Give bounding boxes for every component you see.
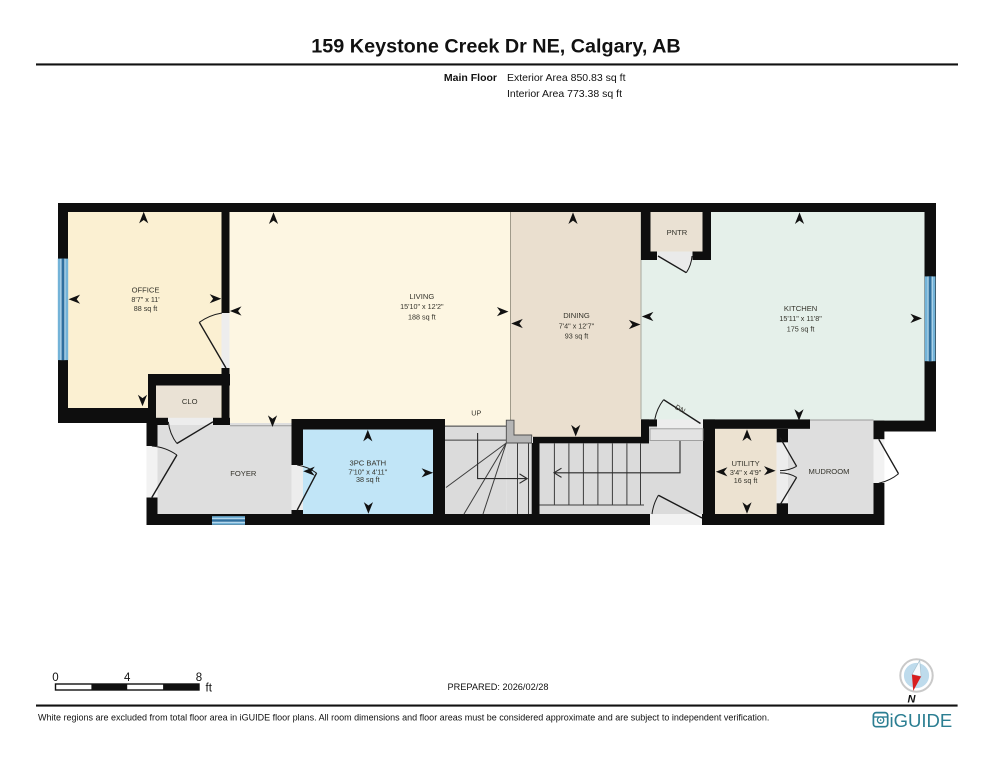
svg-text:159 Keystone Creek Dr NE, Calg: 159 Keystone Creek Dr NE, Calgary, AB [311, 36, 680, 58]
svg-text:0: 0 [52, 672, 58, 684]
svg-text:93 sq ft: 93 sq ft [565, 332, 589, 341]
svg-text:CLO: CLO [182, 397, 198, 406]
svg-text:iGUIDE: iGUIDE [890, 710, 953, 731]
svg-text:PNTR: PNTR [667, 228, 688, 237]
svg-text:KITCHEN: KITCHEN [784, 304, 817, 313]
svg-text:MUDROOM: MUDROOM [809, 467, 850, 476]
svg-text:15'11" x 11'8": 15'11" x 11'8" [779, 314, 822, 323]
svg-text:UP: UP [471, 408, 481, 417]
svg-text:15'10" x 12'2": 15'10" x 12'2" [400, 302, 444, 311]
svg-text:DINING: DINING [563, 311, 590, 320]
svg-text:N: N [908, 694, 917, 706]
svg-text:4: 4 [124, 672, 131, 684]
svg-text:175 sq ft: 175 sq ft [787, 324, 815, 333]
svg-text:LIVING: LIVING [409, 292, 434, 301]
svg-text:UTILITY: UTILITY [731, 459, 759, 468]
svg-text:88 sq ft: 88 sq ft [134, 304, 158, 313]
svg-text:Exterior Area 850.83 sq ft: Exterior Area 850.83 sq ft [507, 72, 626, 84]
svg-text:Interior Area 773.38 sq ft: Interior Area 773.38 sq ft [507, 88, 622, 100]
svg-text:8'7" x 11': 8'7" x 11' [131, 295, 160, 304]
svg-text:OFFICE: OFFICE [132, 286, 160, 295]
svg-text:38 sq ft: 38 sq ft [356, 475, 380, 484]
svg-text:3PC BATH: 3PC BATH [350, 459, 387, 468]
svg-text:8: 8 [196, 672, 202, 684]
svg-text:Main Floor: Main Floor [444, 72, 497, 84]
svg-text:ft: ft [206, 683, 213, 695]
svg-text:188 sq ft: 188 sq ft [408, 312, 436, 321]
svg-text:PREPARED: 2026/02/28: PREPARED: 2026/02/28 [448, 682, 549, 692]
svg-text:White regions are excluded fro: White regions are excluded from total fl… [38, 712, 769, 722]
svg-text:16 sq ft: 16 sq ft [734, 476, 758, 485]
svg-text:7'4" x 12'7": 7'4" x 12'7" [559, 321, 595, 330]
svg-text:FOYER: FOYER [230, 469, 257, 478]
